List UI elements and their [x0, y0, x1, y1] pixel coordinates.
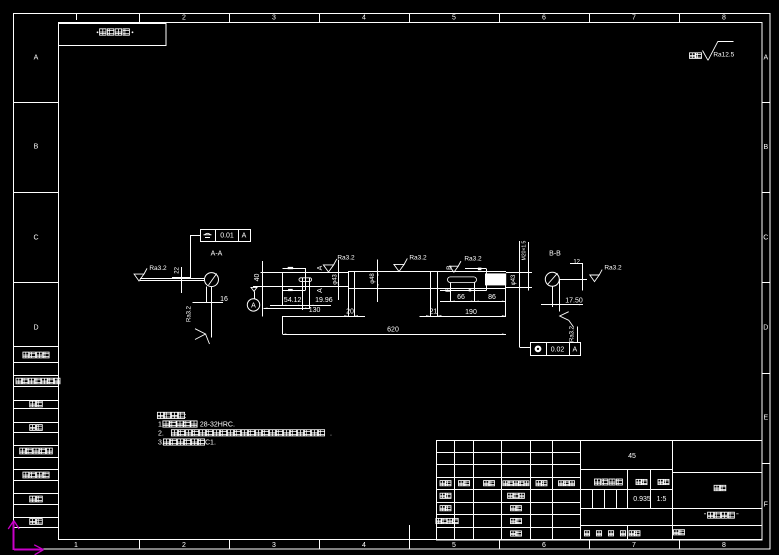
svg-text:4: 4: [362, 15, 366, 22]
svg-text:E: E: [763, 415, 768, 422]
svg-text:A: A: [317, 265, 324, 270]
svg-text:620: 620: [387, 326, 399, 333]
svg-text:A: A: [572, 347, 577, 354]
svg-text:A: A: [763, 55, 768, 62]
svg-text:F: F: [764, 502, 768, 509]
svg-text:C: C: [33, 235, 38, 242]
svg-text:B: B: [445, 287, 452, 292]
svg-text:Ra3.2: Ra3.2: [604, 265, 622, 272]
svg-text:2: 2: [182, 542, 186, 549]
svg-text:D: D: [763, 325, 768, 332]
svg-text:Ra3.2: Ra3.2: [409, 255, 427, 262]
svg-text:54.12: 54.12: [284, 297, 302, 304]
svg-text:φ48: φ48: [370, 273, 376, 284]
svg-text:130: 130: [309, 307, 321, 314]
svg-text:Ra3.2: Ra3.2: [464, 256, 482, 263]
svg-text:Ra3.2: Ra3.2: [570, 325, 576, 342]
svg-text:A: A: [34, 55, 39, 62]
svg-text:.: .: [330, 431, 332, 438]
svg-text:B: B: [763, 144, 768, 151]
svg-text:Ra3.2: Ra3.2: [187, 305, 193, 322]
svg-text:C: C: [763, 235, 768, 242]
svg-text:17.50: 17.50: [565, 297, 583, 304]
svg-text:5: 5: [452, 542, 456, 549]
svg-text:0.935: 0.935: [633, 496, 651, 503]
svg-text:": ": [736, 514, 738, 520]
svg-text:8: 8: [722, 542, 726, 549]
svg-text:3: 3: [272, 15, 276, 22]
svg-text:A: A: [251, 303, 256, 310]
svg-text:7: 7: [632, 15, 636, 22]
svg-text:22: 22: [174, 266, 180, 273]
svg-text:8: 8: [722, 15, 726, 22]
svg-text:0.01: 0.01: [220, 233, 234, 240]
svg-text:21: 21: [430, 309, 438, 316]
svg-text:A: A: [242, 233, 247, 240]
svg-text:45: 45: [628, 453, 636, 460]
svg-text:3: 3: [272, 542, 276, 549]
svg-text:φ43: φ43: [333, 274, 339, 285]
svg-text:M20×1.5: M20×1.5: [522, 240, 528, 260]
svg-text:B: B: [446, 265, 453, 270]
svg-text:1: 1: [74, 542, 78, 549]
svg-text:A: A: [317, 288, 324, 293]
svg-text:B-B: B-B: [549, 251, 561, 258]
svg-text:19.96: 19.96: [315, 297, 333, 304]
svg-text:C1.: C1.: [205, 440, 216, 447]
svg-text:190: 190: [465, 309, 477, 316]
svg-text:, 28-32HRC.: , 28-32HRC.: [196, 422, 235, 429]
svg-text:5: 5: [452, 15, 456, 22]
svg-text:6: 6: [542, 15, 546, 22]
svg-text:A-A: A-A: [211, 251, 223, 258]
svg-text:40: 40: [254, 274, 261, 282]
svg-text:20: 20: [346, 309, 354, 316]
svg-text:B: B: [34, 144, 39, 151]
svg-text:16: 16: [220, 296, 228, 303]
svg-text:6: 6: [542, 542, 546, 549]
svg-text:Ra12.5: Ra12.5: [713, 52, 734, 59]
svg-text:D: D: [33, 325, 38, 332]
svg-text:φ43: φ43: [511, 274, 517, 285]
svg-text:Ra3.2: Ra3.2: [337, 255, 355, 262]
svg-text:86: 86: [488, 294, 496, 301]
svg-text:66: 66: [457, 294, 465, 301]
svg-text::: :: [185, 413, 187, 420]
svg-text:12: 12: [573, 259, 580, 265]
svg-text:4: 4: [362, 542, 366, 549]
svg-text:0.02: 0.02: [551, 347, 565, 354]
svg-text:7: 7: [632, 542, 636, 549]
svg-text:2: 2: [182, 15, 186, 22]
svg-text:1:5: 1:5: [657, 496, 667, 503]
svg-text:Ra3.2: Ra3.2: [149, 265, 167, 272]
svg-text:2.: 2.: [158, 431, 164, 438]
svg-text:": ": [704, 514, 706, 520]
